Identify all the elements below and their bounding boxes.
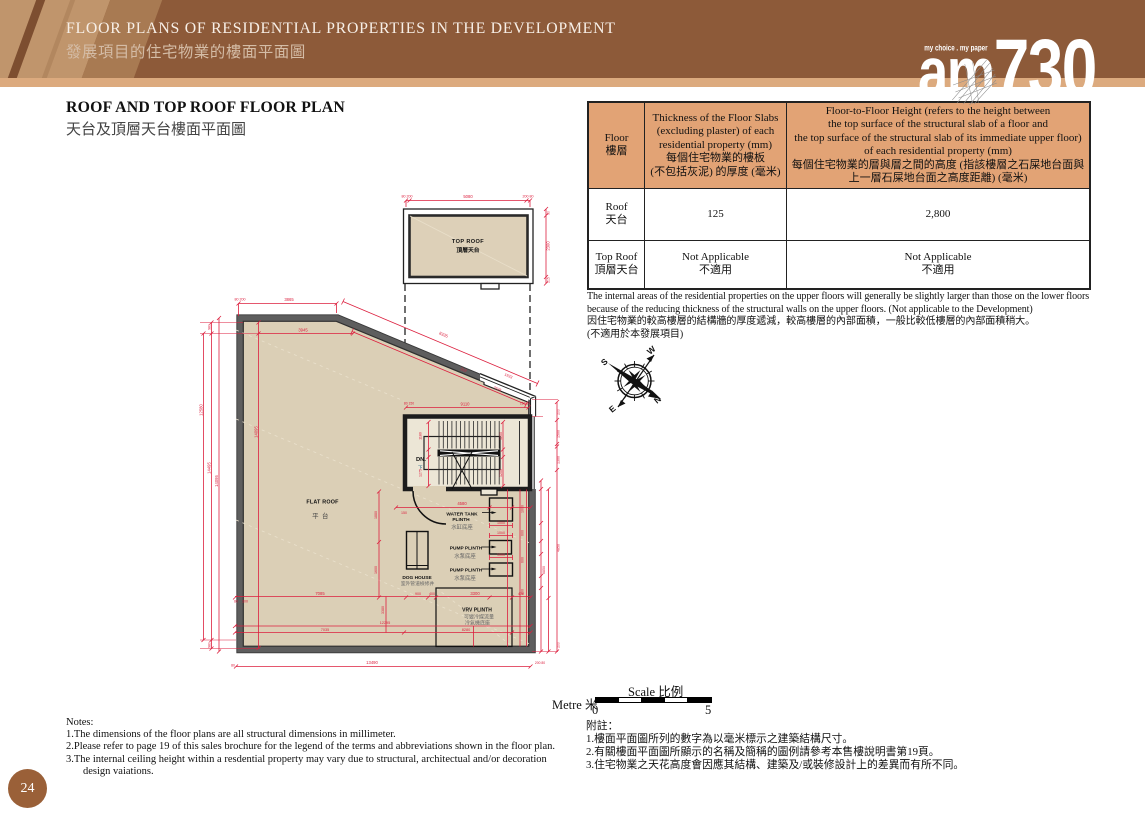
svg-text:9110: 9110	[460, 402, 470, 407]
svg-text:W: W	[645, 345, 658, 357]
svg-text:DN.: DN.	[416, 457, 426, 463]
svg-text:1200: 1200	[499, 469, 503, 477]
svg-text:1000: 1000	[497, 521, 505, 525]
svg-text:6850: 6850	[542, 566, 546, 574]
svg-text:80: 80	[231, 664, 235, 668]
svg-text:am730: am730	[918, 21, 1096, 110]
svg-text:1500: 1500	[557, 430, 561, 438]
svg-text:PUMP PLINTH: PUMP PLINTH	[450, 546, 483, 552]
svg-text:300: 300	[242, 600, 248, 604]
svg-text:400: 400	[429, 592, 435, 596]
svg-text:TOP ROOF: TOP ROOF	[452, 239, 484, 245]
svg-text:WATER TANK: WATER TANK	[446, 512, 478, 518]
svg-text:8280: 8280	[462, 628, 470, 632]
svg-text:1880: 1880	[374, 511, 378, 519]
svg-text:215: 215	[547, 277, 551, 283]
svg-text:水泵底座: 水泵底座	[454, 574, 476, 582]
svg-text:80: 80	[234, 600, 238, 604]
svg-text:14095: 14095	[254, 426, 259, 438]
svg-text:980: 980	[208, 642, 212, 648]
svg-text:80 150: 80 150	[404, 402, 414, 406]
svg-text:1275: 1275	[419, 469, 423, 477]
svg-text:200 80: 200 80	[535, 661, 545, 665]
svg-text:1000: 1000	[497, 531, 505, 535]
svg-text:1000: 1000	[497, 553, 505, 557]
svg-text:5080: 5080	[463, 194, 473, 199]
svg-text:200: 200	[557, 409, 561, 415]
svg-text:600: 600	[521, 557, 525, 563]
svg-text:200: 200	[557, 642, 561, 648]
svg-text:900: 900	[415, 592, 421, 596]
svg-text:可變冷媒流量: 可變冷媒流量	[464, 613, 494, 620]
svg-text:水缸底座: 水缸底座	[451, 523, 473, 531]
svg-text:3380: 3380	[381, 606, 385, 614]
svg-text:PLINTH: PLINTH	[452, 517, 470, 523]
svg-text:4850: 4850	[557, 544, 561, 552]
svg-text:80 200: 80 200	[402, 195, 413, 199]
svg-text:1300: 1300	[557, 456, 561, 464]
svg-text:3945: 3945	[298, 328, 308, 333]
svg-text:冷氣機底座: 冷氣機底座	[465, 620, 490, 627]
svg-text:7085: 7085	[315, 591, 325, 596]
svg-text:13490: 13490	[366, 660, 378, 665]
svg-text:150: 150	[401, 511, 407, 515]
svg-text:1600: 1600	[374, 566, 378, 574]
svg-text:平台: 平台	[312, 511, 332, 520]
svg-text:S: S	[599, 356, 610, 368]
svg-text:1000: 1000	[521, 505, 525, 513]
svg-text:600: 600	[521, 530, 525, 536]
svg-text:室外管道檢修井: 室外管道檢修井	[401, 580, 435, 587]
svg-text:400: 400	[518, 592, 524, 596]
svg-text:8335: 8335	[438, 330, 449, 339]
svg-text:PUMP PLINTH: PUMP PLINTH	[450, 568, 483, 574]
svg-text:頂層天台: 頂層天台	[456, 246, 479, 254]
svg-text:VRV PLINTH: VRV PLINTH	[462, 608, 492, 614]
svg-text:200 80: 200 80	[523, 195, 534, 199]
svg-text:2300: 2300	[546, 241, 551, 251]
svg-text:FLAT ROOF: FLAT ROOF	[306, 500, 339, 506]
svg-text:3300: 3300	[470, 591, 480, 596]
svg-text:150 80: 150 80	[520, 402, 530, 406]
svg-text:14495: 14495	[207, 462, 212, 474]
svg-text:980: 980	[208, 324, 212, 330]
svg-text:水泵底座: 水泵底座	[454, 552, 476, 560]
svg-text:12295: 12295	[380, 621, 391, 625]
svg-text:80 200: 80 200	[235, 298, 246, 302]
svg-text:1200: 1200	[499, 432, 503, 440]
svg-text:E: E	[607, 403, 618, 415]
svg-text:1933: 1933	[504, 373, 513, 380]
svg-text:90: 90	[547, 211, 551, 215]
svg-text:DOG HOUSE: DOG HOUSE	[402, 575, 432, 581]
svg-text:4580: 4580	[457, 501, 467, 506]
svg-text:1180: 1180	[419, 432, 423, 440]
svg-text:7035: 7035	[321, 628, 329, 632]
svg-text:N: N	[652, 394, 663, 406]
svg-text:12580: 12580	[199, 404, 204, 416]
svg-text:3865: 3865	[284, 297, 294, 302]
svg-text:14095: 14095	[214, 475, 219, 487]
